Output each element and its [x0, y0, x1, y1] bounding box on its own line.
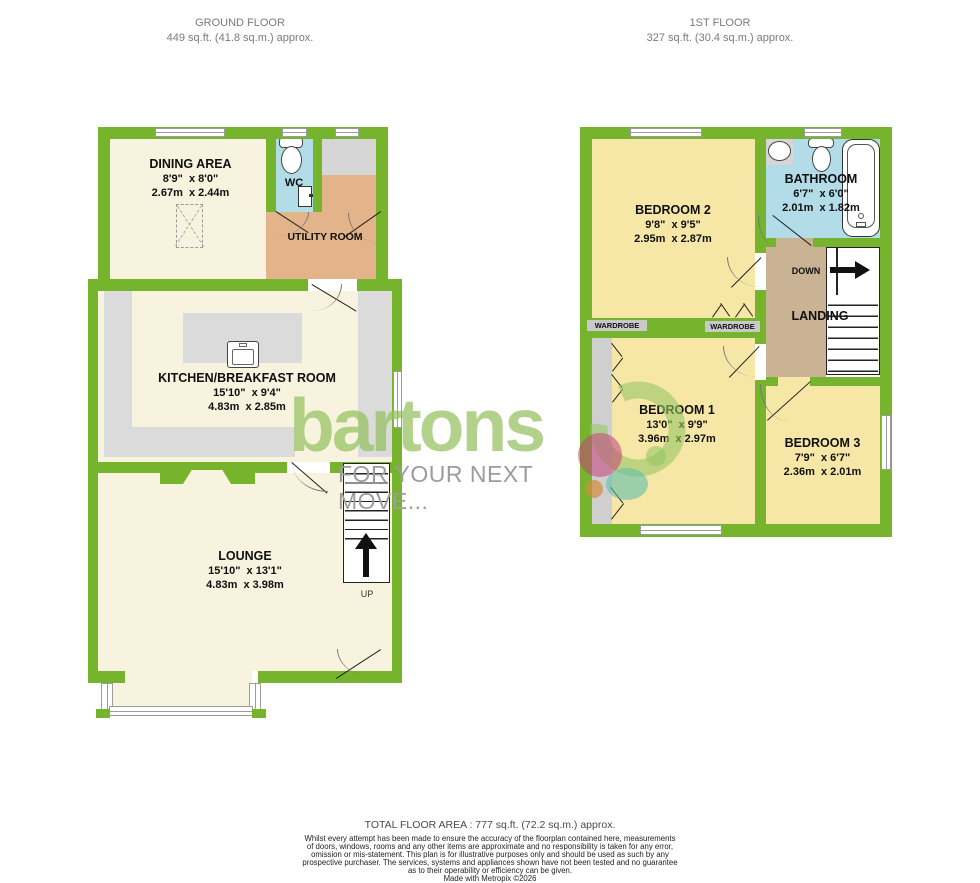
ground-floor-header: GROUND FLOOR 449 sq.ft. (41.8 sq.m.) app…: [75, 16, 405, 46]
utility-room-label: UTILITY ROOM: [270, 231, 380, 243]
first-floor-header: 1ST FLOOR 327 sq.ft. (30.4 sq.m.) approx…: [555, 16, 885, 46]
up-arrow-shaft: [363, 548, 369, 577]
wall: [258, 671, 402, 683]
room-size-metric: 2.95m x 2.87m: [598, 232, 748, 246]
bedroom3-label: BEDROOM 3 7'9" x 6'7" 2.36m x 2.01m: [760, 436, 885, 479]
bedroom1-window: [640, 525, 722, 535]
bedroom2-label: BEDROOM 2 9'8" x 9'5" 2.95m x 2.87m: [598, 203, 748, 246]
down-arrow-icon: [855, 261, 870, 279]
down-arrow-shaft: [830, 267, 855, 273]
room-name: BEDROOM 2: [598, 203, 748, 218]
wall: [357, 279, 402, 291]
kitchen-tap-icon: [239, 343, 247, 347]
lounge-label: LOUNGE 15'10" x 13'1" 4.83m x 3.98m: [164, 549, 326, 592]
logo-orange-dot: [585, 480, 603, 498]
wall: [755, 338, 766, 344]
kitchen-counter-bottom: [132, 427, 295, 457]
bathroom-label: BATHROOM 6'7" x 6'0" 2.01m x 1.82m: [760, 172, 882, 215]
room-name: LOUNGE: [164, 549, 326, 564]
up-label: UP: [352, 589, 382, 599]
bedroom2-window: [630, 128, 702, 137]
room-name: BATHROOM: [760, 172, 882, 187]
bay-wall-corner: [96, 709, 110, 718]
logo-b-dot: [646, 446, 666, 466]
bay-wall-corner: [252, 709, 266, 718]
logo-pink-dot: [578, 433, 622, 477]
kitchen-sink-basin: [232, 349, 254, 365]
first-floor-title: 1ST FLOOR: [555, 16, 885, 31]
bathtub-tap-icon: [856, 222, 866, 227]
floorplan-page: GROUND FLOOR 449 sq.ft. (41.8 sq.m.) app…: [0, 0, 980, 883]
room-size-imperial: 6'7" x 6'0": [760, 187, 882, 201]
wc-window: [282, 128, 307, 137]
utility-floor-upper: [322, 175, 376, 212]
dining-window: [155, 128, 225, 137]
landing-label: LANDING: [780, 309, 860, 323]
wall: [580, 524, 892, 537]
wardrobe-right-label: WARDROBE: [705, 321, 760, 332]
logo-teal-dot: [606, 468, 648, 500]
wall: [580, 127, 892, 139]
room-name: DINING AREA: [118, 157, 263, 172]
room-size-imperial: 9'8" x 9'5": [598, 218, 748, 232]
kitchen-counter-left: [104, 291, 132, 457]
room-size-metric: 2.67m x 2.44m: [118, 186, 263, 200]
room-size-metric: 2.36m x 2.01m: [760, 465, 885, 479]
bartons-logo-mark: [572, 374, 694, 512]
room-size-metric: 2.01m x 1.82m: [760, 201, 882, 215]
room-name: BEDROOM 3: [760, 436, 885, 451]
wardrobe-left-label: WARDROBE: [587, 320, 647, 331]
bathroom-toilet-bowl-icon: [812, 146, 831, 172]
utility-counter: [322, 139, 376, 175]
room-size-imperial: 7'9" x 6'7": [760, 451, 885, 465]
landing-floor: [766, 238, 826, 377]
up-arrow-icon: [355, 533, 377, 549]
metropix-credit: Made with Metropix ©2026: [140, 875, 840, 883]
room-size-imperial: 8'9" x 8'0": [118, 172, 263, 186]
wall: [98, 139, 110, 279]
bathroom-sink-icon: [768, 141, 791, 161]
wall: [755, 290, 766, 318]
ground-floor-area: 449 sq.ft. (41.8 sq.m.) approx.: [75, 31, 405, 46]
disclaimer-text: Whilst every attempt has been made to en…: [140, 835, 840, 882]
room-size-imperial: 15'10" x 13'1": [164, 564, 326, 578]
ground-floor-title: GROUND FLOOR: [75, 16, 405, 31]
wall: [88, 279, 308, 291]
wc-label: WC: [279, 177, 309, 189]
bartons-logo-text: bartons: [289, 388, 589, 463]
wall: [266, 139, 276, 212]
down-label: DOWN: [788, 266, 824, 276]
staircase-down-steps: [828, 295, 878, 373]
wall: [810, 377, 892, 386]
wall: [376, 139, 388, 279]
wall: [88, 671, 125, 683]
bay-window-front: [109, 706, 253, 716]
wall: [313, 139, 322, 212]
first-floor-area: 327 sq.ft. (30.4 sq.m.) approx.: [555, 31, 885, 46]
total-floor-area: TOTAL FLOOR AREA : 777 sq.ft. (72.2 sq.m…: [240, 819, 740, 831]
wall: [88, 291, 98, 671]
utility-window: [335, 128, 359, 137]
bay-window-floor: [110, 671, 252, 708]
dining-area-label: DINING AREA 8'9" x 8'0" 2.67m x 2.44m: [118, 157, 263, 200]
bathroom-window: [804, 128, 842, 137]
wc-toilet-bowl-icon: [281, 146, 302, 174]
room-size-metric: 4.83m x 3.98m: [164, 578, 326, 592]
wall: [813, 238, 892, 247]
